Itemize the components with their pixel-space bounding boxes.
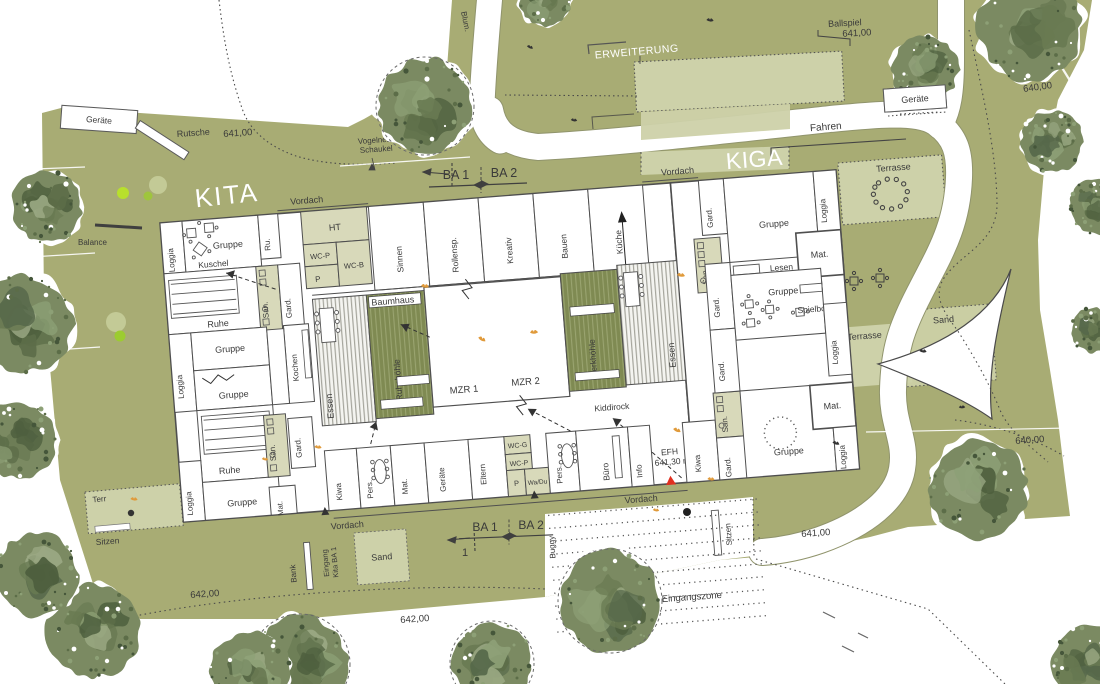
svg-text:Pers.: Pers. — [554, 465, 564, 484]
svg-text:KIGA: KIGA — [725, 144, 784, 174]
svg-text:HT: HT — [329, 222, 342, 233]
svg-text:Gard.: Gard. — [712, 297, 723, 318]
svg-text:Mat.: Mat. — [400, 478, 410, 494]
svg-text:Balance: Balance — [78, 238, 107, 247]
svg-text:San.: San. — [268, 444, 278, 461]
svg-text:Loggia: Loggia — [175, 374, 186, 399]
svg-text:Bank: Bank — [288, 563, 298, 583]
svg-text:WC-P: WC-P — [509, 460, 528, 468]
svg-text:Ruhe: Ruhe — [207, 318, 229, 330]
svg-text:P: P — [514, 479, 520, 488]
svg-text:1: 1 — [462, 547, 468, 559]
svg-text:Gard.: Gard. — [293, 437, 304, 458]
svg-text:Pers.: Pers. — [365, 480, 375, 499]
svg-text:Sitzen: Sitzen — [95, 535, 120, 547]
svg-text:Info: Info — [634, 464, 644, 479]
svg-text:MZR 1: MZR 1 — [449, 384, 478, 397]
svg-text:WC-P: WC-P — [310, 251, 331, 262]
svg-text:Kiwa: Kiwa — [693, 454, 703, 473]
svg-text:Gard.: Gard. — [283, 298, 294, 319]
svg-text:BA 1: BA 1 — [472, 520, 498, 534]
svg-text:Gard.: Gard. — [705, 208, 716, 229]
svg-text:Ruhe: Ruhe — [219, 464, 241, 476]
svg-text:Loggia: Loggia — [184, 491, 195, 516]
svg-text:Bauen: Bauen — [558, 233, 570, 259]
svg-text:Sand: Sand — [933, 314, 955, 326]
svg-text:MZR 2: MZR 2 — [511, 376, 540, 389]
svg-text:Ballspiel: Ballspiel — [828, 17, 862, 29]
svg-text:640,00: 640,00 — [1015, 434, 1045, 447]
svg-text:Loggia: Loggia — [829, 340, 840, 365]
svg-text:Gard.: Gard. — [717, 361, 728, 382]
svg-text:Mat.: Mat. — [275, 501, 285, 516]
svg-text:San.: San. — [720, 416, 730, 433]
svg-text:San.: San. — [261, 301, 271, 318]
svg-text:WC-B: WC-B — [344, 260, 365, 271]
svg-text:Mat.: Mat. — [823, 400, 841, 411]
svg-text:Sinnen: Sinnen — [394, 245, 406, 272]
svg-text:Büro: Büro — [600, 462, 611, 481]
svg-text:Buggy: Buggy — [547, 536, 558, 559]
svg-text:Kreativ: Kreativ — [503, 236, 515, 264]
svg-text:Essen: Essen — [324, 393, 336, 419]
svg-text:Essen: Essen — [666, 342, 678, 368]
svg-text:641,00: 641,00 — [223, 127, 253, 140]
svg-text:Sitzen: Sitzen — [723, 523, 734, 546]
svg-text:Geräte: Geräte — [86, 114, 113, 126]
svg-text:Eltern: Eltern — [478, 464, 489, 486]
svg-text:Kiwa: Kiwa — [334, 482, 344, 501]
svg-text:Mat.: Mat. — [810, 249, 828, 260]
svg-text:Ru.: Ru. — [263, 238, 273, 251]
svg-text:BA 2: BA 2 — [491, 166, 517, 180]
svg-text:Gard.: Gard. — [723, 457, 734, 478]
svg-text:Geräte: Geräte — [901, 93, 929, 105]
svg-text:BA 1: BA 1 — [443, 168, 469, 182]
svg-text:P: P — [315, 275, 321, 284]
svg-text:642,00: 642,00 — [400, 613, 430, 626]
svg-text:Sand: Sand — [371, 551, 393, 563]
svg-text:641,00: 641,00 — [842, 27, 872, 40]
svg-text:Terr: Terr — [92, 494, 107, 504]
svg-text:Loggia: Loggia — [818, 198, 829, 223]
svg-text:BA 2: BA 2 — [518, 518, 544, 532]
svg-text:Loggia: Loggia — [166, 247, 177, 272]
svg-text:Loggia: Loggia — [838, 444, 849, 469]
svg-text:641,00: 641,00 — [801, 527, 831, 540]
svg-text:642,00: 642,00 — [190, 588, 220, 601]
